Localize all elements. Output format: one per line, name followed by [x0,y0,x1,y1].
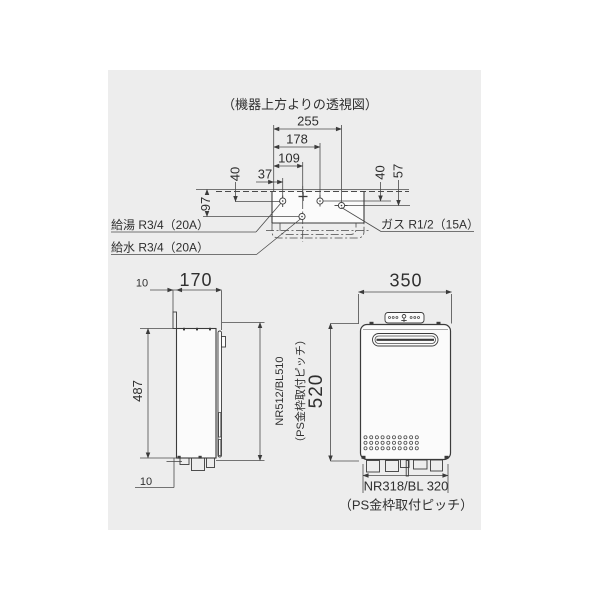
cabinet-outline [361,325,451,460]
dim-40-right-label: 40 [373,165,388,179]
front-mount-pitch-note: （PS金枠取付ピッチ） [339,498,473,513]
dim-109-label: 109 [278,151,300,166]
dim-170-label: 170 [179,270,212,290]
dim-178-label: 178 [286,132,308,147]
side-view-body [173,312,226,471]
mount-tab [222,337,226,348]
front-panel-edge [218,331,222,457]
dim-350-label: 350 [389,271,422,291]
side-mount-pitch-value: NR512/BL510 [274,356,286,425]
dim-10-top-label: 10 [136,278,148,290]
cold-water-label: 給水 R3/4（20A） [111,241,209,255]
dim-520-label: 520 [306,374,327,409]
technical-drawing-svg: （機器上方よりの透視図） [0,0,600,600]
dim-40-left-label: 40 [228,167,243,181]
gas-label: ガス R1/2（15A） [381,218,479,232]
front-mount-pitch-value: NR318/BL 320 [364,479,449,494]
dim-57-label: 57 [391,164,406,178]
dim-10-bottom-label: 10 [140,476,152,488]
side-mount-pitch-note: （PS金枠取付ピッチ） [293,334,307,448]
hot-water-label: 給湯 R3/4（20A） [111,218,209,232]
dim-97-label: 97 [198,197,213,211]
dim-487-label: 487 [130,380,145,402]
page: （機器上方よりの透視図） [0,0,600,600]
top-view-title: （機器上方よりの透視図） [222,97,378,112]
dim-255-label: 255 [297,114,319,129]
front-view-body [361,313,451,477]
top-view-body-fill [272,192,364,224]
dim-37-label: 37 [258,167,272,182]
